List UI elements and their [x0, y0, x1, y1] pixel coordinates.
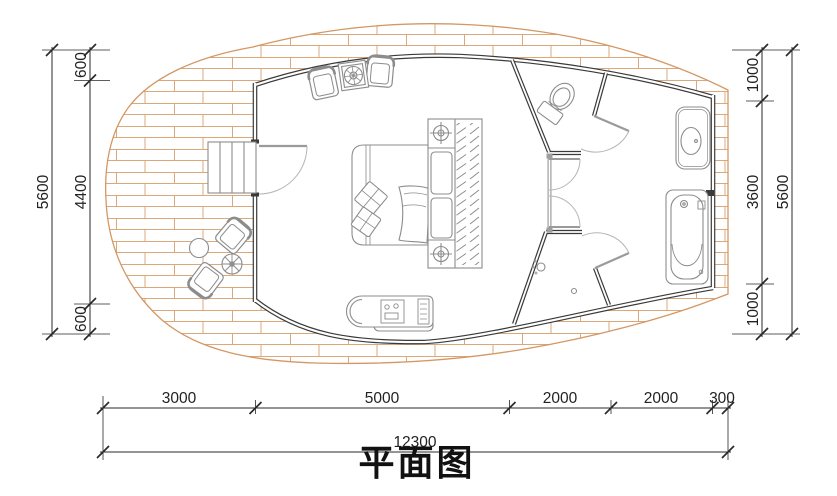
dim-left-total: 5600	[35, 174, 52, 209]
dim-bottom-seg-3: 2000	[644, 390, 679, 407]
drawing-title: 平面图	[358, 442, 475, 483]
floor-plan-page: 5600 600 4400 600 1000 3600 1000 5600 30…	[0, 0, 837, 496]
armchair	[366, 55, 395, 88]
dim-left-seg-0: 600	[73, 52, 90, 78]
dim-right-seg-0: 1000	[745, 57, 762, 92]
double-bed	[351, 145, 433, 245]
dim-left-seg-1: 4400	[73, 174, 90, 209]
armchair	[307, 65, 339, 100]
entry-stairs	[208, 142, 256, 193]
dim-right-seg-2: 1000	[745, 291, 762, 326]
vestibule-jamb	[547, 228, 553, 233]
dim-bottom-seg-2: 2000	[543, 390, 578, 407]
dim-bottom-seg-4: 300	[709, 390, 735, 407]
dim-right-total: 5600	[775, 174, 792, 209]
outdoor-round-table	[190, 239, 209, 258]
floor-plan-svg: 5600 600 4400 600 1000 3600 1000 5600 30…	[0, 0, 837, 496]
wardrobe-hanging-clothes	[457, 123, 481, 265]
side-table	[338, 60, 368, 90]
vestibule-jamb	[547, 154, 553, 159]
parasol-table	[222, 254, 242, 274]
dim-bottom-seg-1: 5000	[365, 390, 400, 407]
headboard-unit	[428, 119, 482, 268]
dim-left-seg-2: 600	[73, 306, 90, 332]
chaise-bench	[346, 296, 433, 331]
vanity-sink	[676, 107, 710, 169]
dim-bottom-seg-0: 3000	[162, 390, 197, 407]
bathtub	[666, 190, 708, 284]
dim-right-seg-1: 3600	[745, 174, 762, 209]
